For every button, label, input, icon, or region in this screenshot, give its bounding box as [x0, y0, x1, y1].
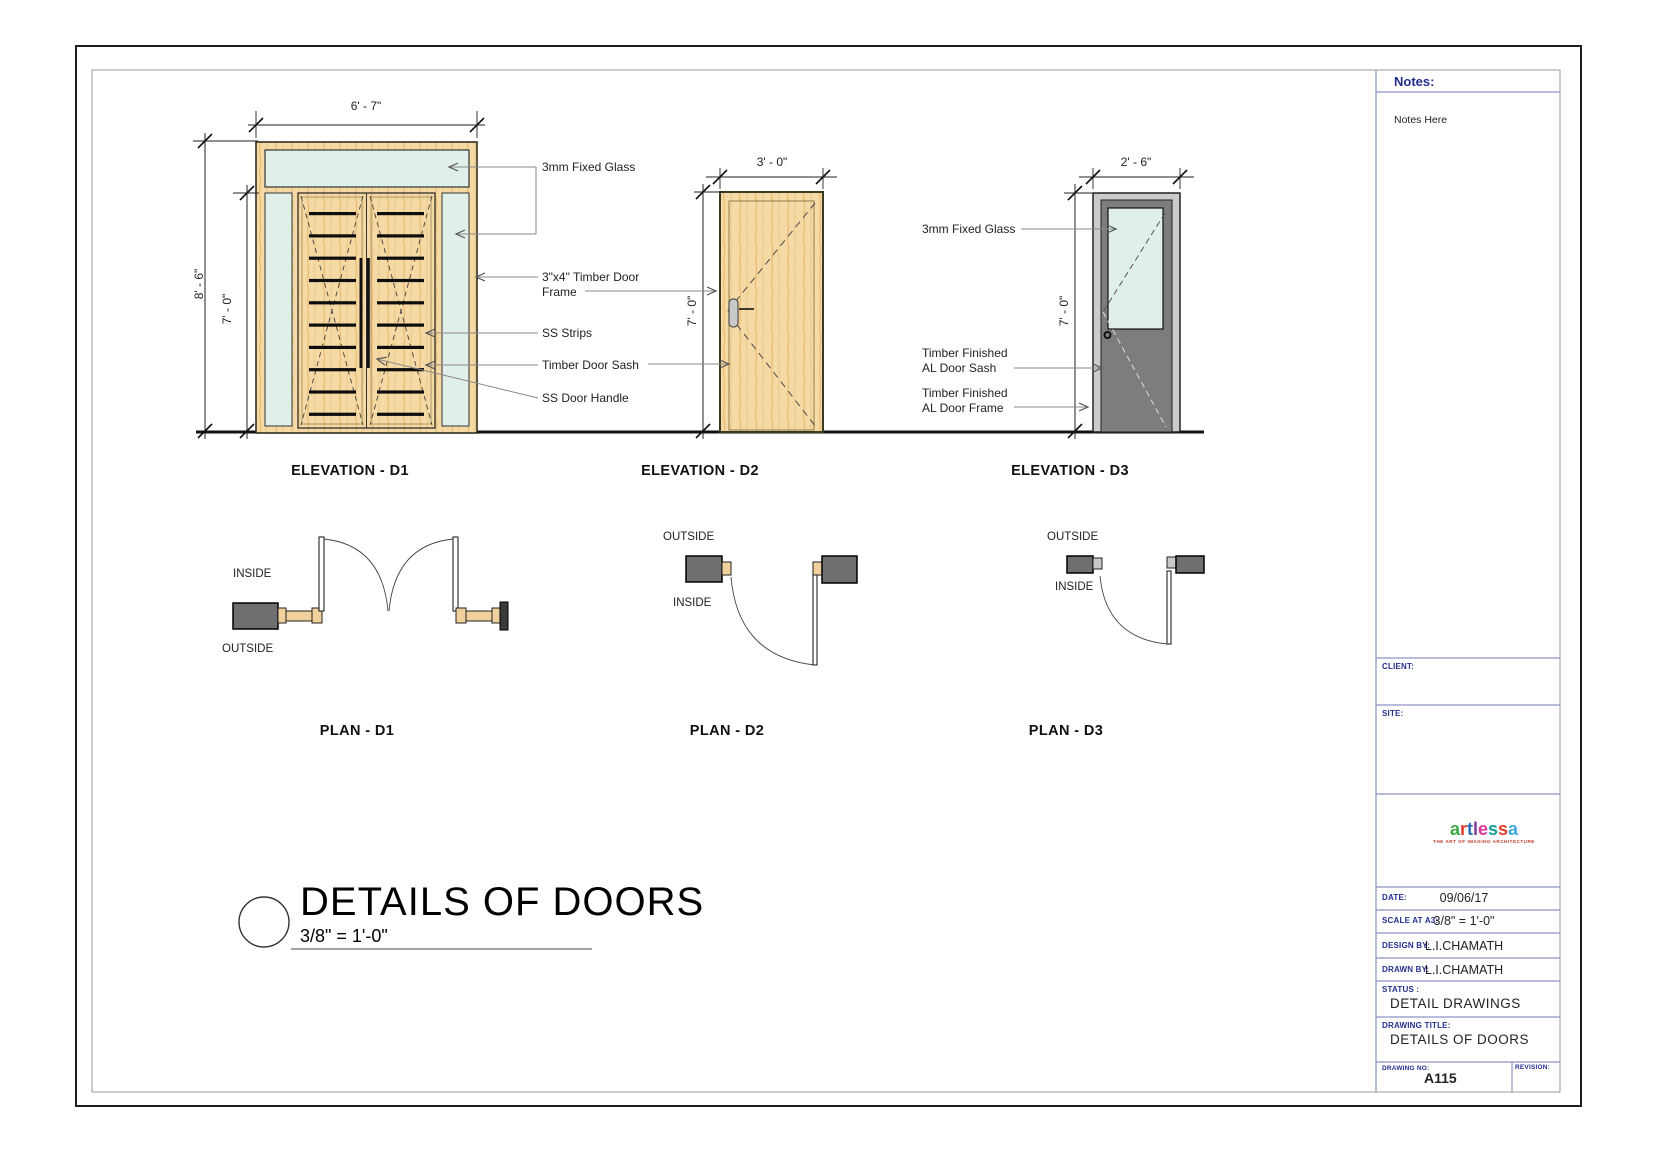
revision-label: REVISION:: [1515, 1064, 1550, 1071]
d1-total-height-dimension: 8' - 6": [192, 244, 206, 324]
plan-d2-outside-label: OUTSIDE: [663, 531, 714, 543]
status-label: STATUS :: [1382, 985, 1419, 994]
d2-door-height-dimension: 7' - 0": [685, 271, 699, 351]
door-lever-handle: [729, 299, 738, 327]
plan-d2-drawing: [686, 556, 857, 665]
drawing-sheet: 6' - 7" 8' - 6" 7' - 0" 3' - 0" 7' - 0" …: [0, 0, 1656, 1170]
callout-d1-frame-line1: 3"x4" Timber Door: [542, 270, 639, 284]
drawing-no-label: DRAWING NO:: [1382, 1065, 1429, 1072]
caption-plan-d2: PLAN - D2: [617, 723, 837, 739]
date-value: 09/06/17: [1404, 891, 1524, 905]
plan-d1-drawing: [233, 537, 508, 630]
caption-plan-d3: PLAN - D3: [956, 723, 1176, 739]
callout-d1-handle: SS Door Handle: [542, 391, 629, 405]
plan-d3-drawing: [1067, 556, 1204, 644]
d1-width-dimension: 6' - 7": [316, 99, 416, 113]
site-label: SITE:: [1382, 709, 1403, 718]
plan-d1-inside-label: INSIDE: [233, 568, 271, 580]
elevation-d1-drawing: [256, 142, 477, 433]
sheet-title-scale: 3/8" = 1'-0": [300, 926, 388, 947]
drawing-title-label: DRAWING TITLE:: [1382, 1021, 1451, 1030]
drawing-title-value: DETAILS OF DOORS: [1390, 1032, 1529, 1047]
caption-elevation-d1: ELEVATION - D1: [240, 463, 460, 479]
logo-tagline: THE ART OF IMAGING ARCHITECTURE: [1424, 839, 1544, 844]
elevation-d2-drawing: [720, 192, 823, 432]
drawing-no-value: A115: [1424, 1070, 1457, 1086]
caption-elevation-d2: ELEVATION - D2: [590, 463, 810, 479]
plan-d2-inside-label: INSIDE: [673, 597, 711, 609]
d3-door-height-dimension: 7' - 0": [1057, 271, 1071, 351]
notes-header: Notes:: [1394, 74, 1434, 89]
caption-plan-d1: PLAN - D1: [247, 723, 467, 739]
logo-wordmark: artlessa: [1424, 820, 1544, 838]
d3-width-dimension: 2' - 6": [1086, 155, 1186, 169]
notes-content: Notes Here: [1394, 114, 1447, 126]
scale-value: 3/8" = 1'-0": [1404, 914, 1524, 928]
callout-d3-sash-line2: AL Door Sash: [922, 361, 996, 375]
callout-d3-fixed-glass: 3mm Fixed Glass: [922, 222, 1015, 236]
callout-d3-frame-line1: Timber Finished: [922, 386, 1008, 400]
d1-door-height-dimension: 7' - 0": [220, 269, 234, 349]
callout-d1-ss-strips: SS Strips: [542, 326, 592, 340]
callout-d3-frame-line2: AL Door Frame: [922, 401, 1004, 415]
company-logo: artlessa THE ART OF IMAGING ARCHITECTURE: [1424, 820, 1544, 844]
callout-d1-sash: Timber Door Sash: [542, 358, 639, 372]
plan-d3-inside-label: INSIDE: [1055, 581, 1093, 593]
caption-elevation-d3: ELEVATION - D3: [960, 463, 1180, 479]
plan-d1-outside-label: OUTSIDE: [222, 643, 273, 655]
d2-width-dimension: 3' - 0": [722, 155, 822, 169]
drawing-linework: [0, 0, 1656, 1170]
client-label: CLIENT:: [1382, 662, 1414, 671]
design-by-value: L.I.CHAMATH: [1404, 939, 1524, 953]
status-value: DETAIL DRAWINGS: [1390, 996, 1521, 1011]
sheet-title: DETAILS OF DOORS: [300, 880, 704, 925]
drawn-by-value: L.I.CHAMATH: [1404, 963, 1524, 977]
callout-d1-fixed-glass: 3mm Fixed Glass: [542, 160, 635, 174]
plan-d3-outside-label: OUTSIDE: [1047, 531, 1098, 543]
callout-d1-frame-line2: Frame: [542, 285, 577, 299]
callout-d3-sash-line1: Timber Finished: [922, 346, 1008, 360]
